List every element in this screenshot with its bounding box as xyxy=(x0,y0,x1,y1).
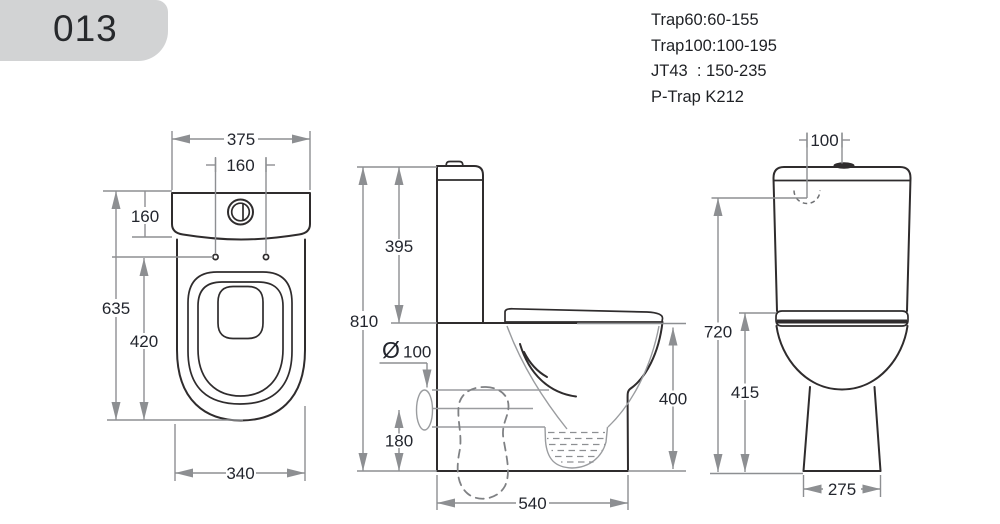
technical-drawing: 375 160 635 160 420 340 xyxy=(0,0,1000,524)
inner-wall-curve xyxy=(507,326,567,429)
dim-outlet-height-label: 180 xyxy=(385,432,413,451)
diameter-symbol: Ø xyxy=(382,337,400,363)
tank-flush-knob xyxy=(834,162,855,168)
dim-outlet-diameter-label: 100 xyxy=(403,343,431,362)
pedestal-left-edge xyxy=(804,387,811,471)
s-trap-dashed-outline xyxy=(458,387,509,499)
seat-mount-hole xyxy=(213,254,218,259)
side-view: 810 395 Ø 100 180 400 540 xyxy=(350,162,687,514)
tank-outline-side xyxy=(437,166,483,322)
top-view: 375 160 635 160 420 340 xyxy=(102,130,310,483)
dim-inlet-offset-label: 100 xyxy=(810,131,838,150)
spec-sheet: 013 Trap60:60-155 Trap100:100-195 JT43 :… xyxy=(0,0,1000,524)
dim-tank-top-height-label: 720 xyxy=(704,323,732,342)
dim-top-width-label: 375 xyxy=(227,130,255,149)
front-view: 100 720 415 275 xyxy=(704,131,911,499)
dim-bowl-width-label: 340 xyxy=(226,464,254,483)
dim-hole-spacing-label: 160 xyxy=(226,156,254,175)
dim-total-height-label: 810 xyxy=(350,312,378,331)
flush-button-inner xyxy=(232,203,250,221)
bowl-cavity-curve xyxy=(520,344,576,397)
seat-front xyxy=(776,311,908,326)
dim-tank-height-label: 395 xyxy=(385,237,413,256)
seat-mount-hole xyxy=(263,254,268,259)
dim-rim-height-label: 400 xyxy=(659,390,687,409)
dim-tank-depth-label: 160 xyxy=(131,207,159,226)
inner-wall-curve xyxy=(608,326,659,427)
bowl-outline-front xyxy=(777,326,908,390)
seat-lid-side xyxy=(505,309,663,322)
outlet-pipe-end xyxy=(417,390,433,430)
tank-outline-front xyxy=(774,167,911,311)
dim-bowl-depth-label: 420 xyxy=(130,332,158,351)
pedestal-right-edge xyxy=(875,387,881,471)
bowl-body-outline-top xyxy=(177,240,305,421)
dim-seat-height-label: 415 xyxy=(731,383,759,402)
dim-total-depth-label: 635 xyxy=(102,299,130,318)
dim-base-depth-label: 540 xyxy=(518,494,546,513)
flush-opening xyxy=(218,287,263,339)
dim-base-width-label: 275 xyxy=(828,480,856,499)
